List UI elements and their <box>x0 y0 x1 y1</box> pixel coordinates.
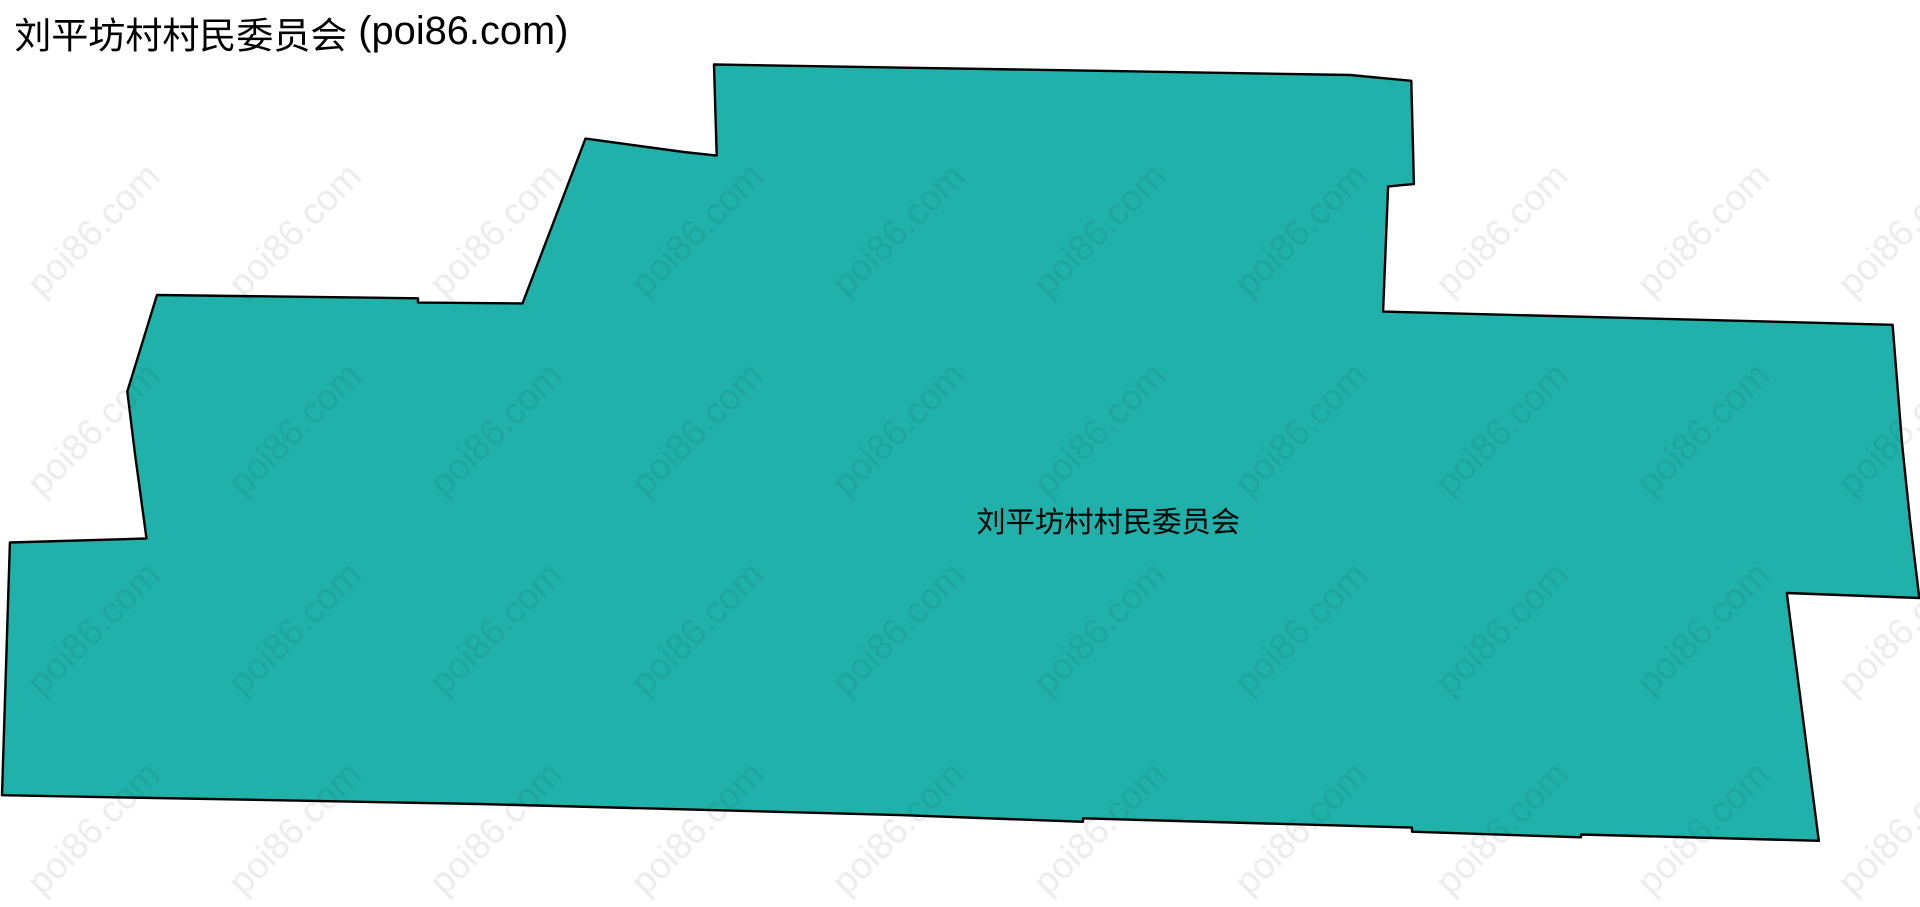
svg-text:(poi86.com): (poi86.com) <box>358 9 568 53</box>
